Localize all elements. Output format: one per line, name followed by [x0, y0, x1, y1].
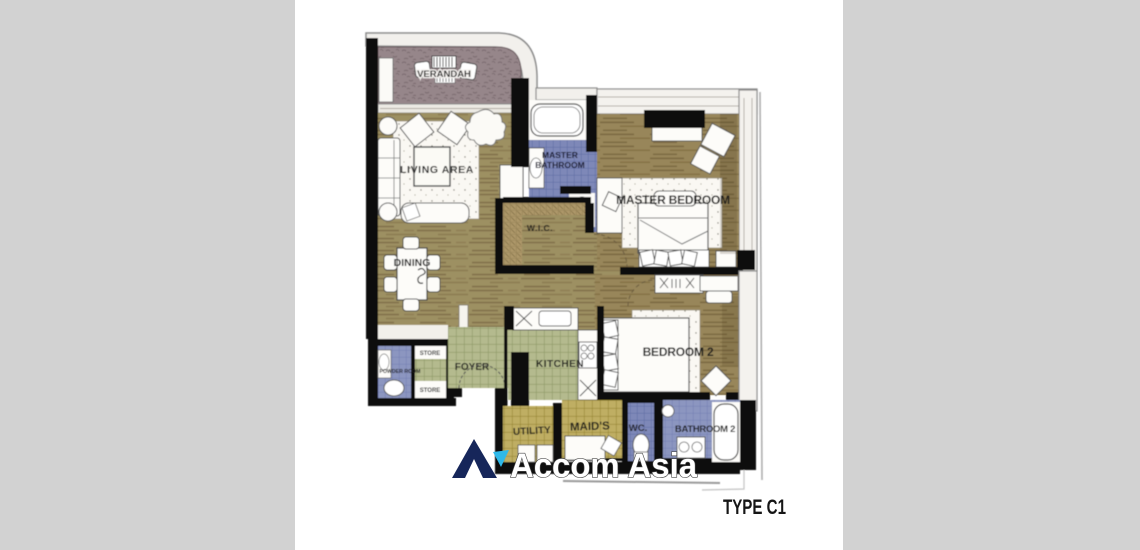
svg-text:LIVING AREA: LIVING AREA — [400, 164, 474, 176]
svg-text:Accom Asia: Accom Asia — [510, 447, 698, 485]
svg-text:MASTER: MASTER — [542, 150, 578, 160]
svg-text:BATHROOM: BATHROOM — [535, 160, 584, 170]
svg-text:BEDROOM 2: BEDROOM 2 — [643, 345, 714, 359]
svg-text:TYPE C1: TYPE C1 — [723, 495, 786, 519]
svg-text:UTILITY: UTILITY — [513, 425, 552, 438]
svg-text:STORE: STORE — [420, 351, 441, 357]
svg-text:BATHROOM 2: BATHROOM 2 — [675, 424, 735, 435]
svg-text:KITCHEN: KITCHEN — [536, 359, 584, 370]
svg-text:W.I.C.: W.I.C. — [527, 223, 553, 233]
svg-text:DINING: DINING — [394, 257, 431, 269]
svg-text:VERANDAH: VERANDAH — [417, 69, 471, 80]
svg-text:WC.: WC. — [629, 423, 647, 434]
svg-text:POWDER ROOM: POWDER ROOM — [380, 369, 421, 375]
svg-text:STORE: STORE — [420, 388, 441, 394]
svg-text:MAID'S: MAID'S — [570, 420, 611, 433]
svg-text:MASTER BEDROOM: MASTER BEDROOM — [616, 193, 730, 207]
